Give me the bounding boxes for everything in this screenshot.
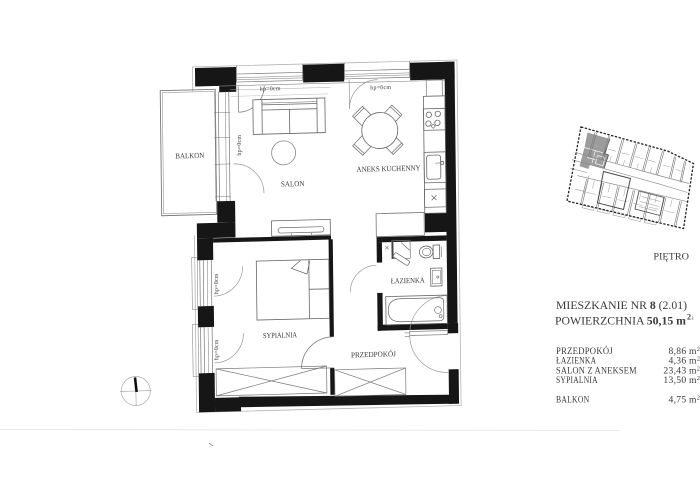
svg-text:PRZEDPOKÓJ: PRZEDPOKÓJ xyxy=(351,348,396,359)
svg-text:BALKON: BALKON xyxy=(175,151,205,161)
svg-text:hp=0cm: hp=0cm xyxy=(370,85,391,92)
svg-text:MIESZKANIE NR 8 (2.01): MIESZKANIE NR 8 (2.01) xyxy=(556,298,687,312)
svg-text:ŁAZIENKA: ŁAZIENKA xyxy=(391,276,426,286)
svg-text:SYPIALNIA: SYPIALNIA xyxy=(263,330,298,340)
svg-text:SALON: SALON xyxy=(281,179,305,189)
svg-text:m2: m2 xyxy=(689,375,700,386)
svg-text:m2: m2 xyxy=(689,395,700,406)
svg-text:ANEKS KUCHENNY: ANEKS KUCHENNY xyxy=(356,163,421,174)
svg-text:BALKON: BALKON xyxy=(556,395,589,406)
svg-text:SYPIALNIA: SYPIALNIA xyxy=(556,375,598,386)
svg-text:4,75: 4,75 xyxy=(669,395,687,406)
svg-text:POWIERZCHNIA 50,15 m: POWIERZCHNIA 50,15 m xyxy=(555,314,686,328)
svg-text:PIĘTRO: PIĘTRO xyxy=(653,251,689,262)
svg-text:hp=0cm: hp=0cm xyxy=(214,339,220,360)
svg-text:2↓: 2↓ xyxy=(687,313,695,322)
svg-text:hp=0cm: hp=0cm xyxy=(260,86,281,93)
svg-text:13,50: 13,50 xyxy=(663,375,686,386)
svg-text:hp=0cm: hp=0cm xyxy=(237,135,243,156)
svg-text:hp=0cm: hp=0cm xyxy=(214,273,220,294)
